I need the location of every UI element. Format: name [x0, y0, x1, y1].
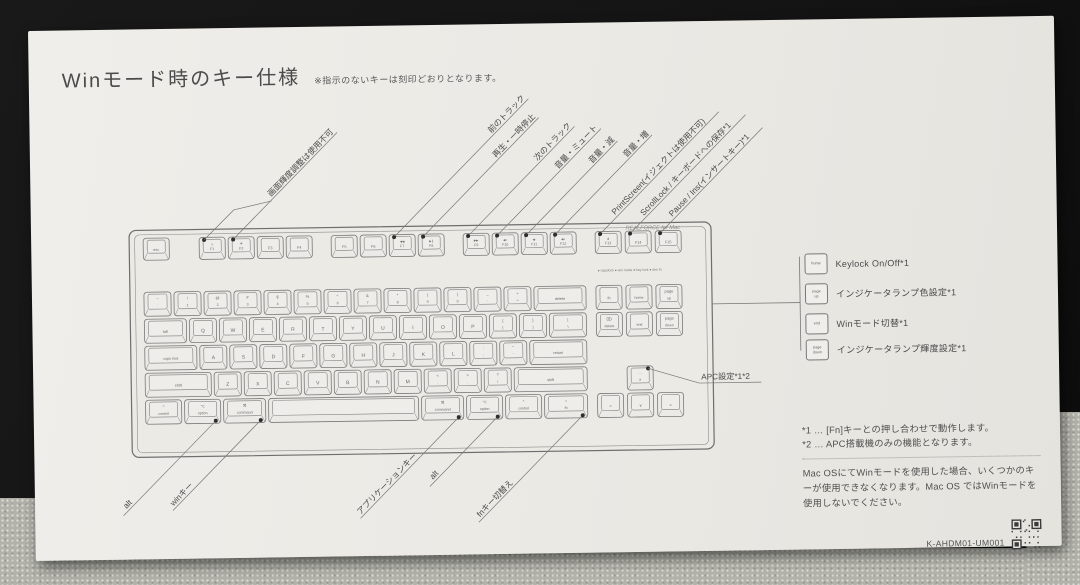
svg-text:▶▶: ▶▶: [474, 238, 479, 242]
callout-label: winキー: [168, 481, 195, 509]
svg-text:9: 9: [427, 300, 429, 304]
key-g: G: [320, 343, 347, 367]
svg-text:⌥: ⌥: [200, 403, 205, 408]
key-f4: F4: [286, 236, 312, 258]
svg-text:delete: delete: [555, 297, 565, 301]
key-page-up: pageup: [656, 284, 682, 308]
svg-text:1: 1: [187, 303, 189, 307]
svg-text:@: @: [215, 295, 219, 300]
svg-text:&: &: [366, 293, 369, 298]
qr-module: [1037, 542, 1038, 543]
svg-text:◀×: ◀×: [503, 238, 507, 242]
svg-text:H: H: [361, 353, 365, 359]
svg-text:C: C: [286, 381, 290, 387]
svg-text:end: end: [636, 323, 642, 327]
key-esc: esc: [143, 238, 169, 260]
key-2: @2: [204, 291, 231, 315]
key-s: S: [230, 345, 257, 369]
svg-text:7: 7: [367, 301, 369, 305]
legend-row-lamp-color: page up インジケータランプ色設定*1: [805, 281, 957, 304]
svg-text:command: command: [237, 411, 253, 415]
key-p: P: [459, 314, 486, 338]
qr-module: [1012, 531, 1013, 532]
svg-text:F1: F1: [210, 247, 214, 251]
svg-text::: :: [483, 345, 484, 350]
svg-text:^: ^: [163, 404, 165, 409]
key-comma: <,: [424, 369, 451, 393]
key-u: U: [369, 316, 396, 340]
qr-module: [1037, 537, 1038, 538]
svg-text:6: 6: [337, 301, 339, 305]
svg-text:up: up: [667, 296, 671, 300]
key-x: X: [244, 371, 271, 395]
model-number: K-AHDM01-UM001: [926, 538, 1004, 551]
svg-text:`: `: [157, 304, 158, 308]
key-f5: F5: [331, 235, 357, 257]
key-f3: F3: [257, 236, 283, 258]
key-5: %5: [294, 290, 321, 314]
svg-text:^: ^: [523, 399, 525, 404]
qr-module: [1020, 537, 1021, 538]
svg-text:5: 5: [307, 302, 309, 306]
key-nav-fn: fn: [596, 285, 622, 309]
qr-module: [1025, 543, 1026, 544]
svg-text:F15: F15: [665, 240, 672, 244]
manual-page: Winモード時のキー仕様 ※指示のないキーは刻印どおりとなります。 REALFO…: [28, 16, 1062, 561]
photo-scene: Winモード時のキー仕様 ※指示のないキーは刻印どおりとなります。 REALFO…: [0, 0, 1080, 585]
svg-text:D: D: [272, 354, 276, 360]
footnote-divider: [802, 455, 1040, 460]
model-row: K-AHDM01-UM001: [803, 519, 1041, 553]
key-rcontrol: ^control: [505, 394, 541, 419]
legend-label-keylock: Keylock On/Off*1: [835, 257, 909, 268]
svg-text:=: =: [516, 299, 518, 303]
svg-text:◀-: ◀-: [532, 237, 535, 241]
svg-text:shift: shift: [547, 378, 555, 382]
qr-code: [1011, 519, 1041, 549]
key-lcontrol: ^control: [145, 400, 181, 425]
svg-text:F9: F9: [474, 243, 478, 247]
key-quote: "': [500, 341, 527, 365]
key-arrow-down: ∨: [627, 393, 653, 417]
key-3: #3: [234, 291, 261, 315]
svg-text:F12: F12: [560, 242, 566, 246]
key-f6: F6: [360, 235, 386, 257]
key-lbracket: {[: [489, 314, 516, 338]
key-v: V: [304, 371, 331, 395]
key-r: R: [279, 317, 306, 341]
key-arrow-left: <: [597, 393, 623, 417]
svg-text:!: !: [187, 296, 188, 301]
svg-text:8: 8: [397, 300, 399, 304]
qr-module: [1033, 537, 1034, 538]
callout-top-1: 前のトラック: [388, 91, 528, 235]
svg-text:page: page: [665, 315, 675, 320]
svg-text:4: 4: [277, 302, 279, 306]
svg-text:F14: F14: [635, 241, 642, 245]
svg-text:\: \: [567, 325, 568, 329]
svg-text:delete: delete: [605, 324, 615, 328]
key-j: J: [380, 342, 407, 366]
key-7: &7: [354, 289, 381, 313]
svg-text:M: M: [406, 379, 410, 385]
key-lshift: shift: [145, 372, 211, 397]
key-return: return: [530, 340, 587, 365]
key-equals: +=: [504, 287, 531, 311]
svg-text:;: ;: [483, 353, 484, 357]
qr-module: [1014, 523, 1018, 527]
legend-bracket-line: [712, 303, 800, 304]
key-delete: delete: [534, 286, 586, 311]
qr-module: [1015, 543, 1019, 547]
legend-row-lamp-brightness: page down インジケータランプ輝度設定*1: [806, 337, 967, 360]
key-b: B: [334, 370, 361, 394]
qr-module: [1026, 547, 1027, 548]
key-m: M: [394, 369, 421, 393]
key-semicolon: :;: [470, 341, 497, 365]
qr-module: [1023, 521, 1024, 522]
svg-text:⌘: ⌘: [243, 403, 247, 408]
svg-text:0: 0: [457, 299, 459, 303]
qr-module: [1024, 531, 1025, 532]
key-capslock: caps lock: [145, 346, 197, 371]
apc-label: APC設定*1*2: [701, 371, 750, 382]
svg-text:◀◀: ◀◀: [400, 239, 405, 243]
svg-text:F11: F11: [531, 242, 537, 246]
svg-text:option: option: [480, 407, 490, 411]
svg-text:2: 2: [217, 303, 219, 307]
svg-text:F2: F2: [239, 247, 243, 251]
svg-text:%: %: [306, 294, 310, 299]
svg-text:^: ^: [336, 293, 338, 298]
end-key-icon: end: [805, 313, 828, 334]
callout-top-9: Pause / Ins(インサートキー)*1: [655, 121, 763, 232]
svg-text:U: U: [381, 326, 385, 332]
key-rbracket: }]: [519, 313, 546, 337]
key-d: D: [260, 344, 287, 368]
svg-text:F8: F8: [429, 244, 433, 248]
page-down-key-icon: page down: [806, 339, 829, 360]
legend-label-lamp-color: インジケータランプ色設定*1: [836, 285, 957, 300]
svg-text:[: [: [502, 326, 503, 330]
svg-text:F13: F13: [605, 241, 611, 245]
key-q: Q: [189, 318, 216, 342]
mac-os-note: Mac OSにてWinモードを使用した場合、いくつかのキーが使用できなくなります…: [803, 463, 1042, 511]
key-0: )0: [444, 287, 471, 311]
legend-label-win-mode: Winモード切替*1: [836, 316, 908, 330]
key-k: K: [410, 342, 437, 366]
svg-text:F10: F10: [502, 243, 508, 247]
key-end: end: [626, 312, 652, 336]
key-h: H: [350, 343, 377, 367]
key-n: N: [364, 370, 391, 394]
svg-text:L: L: [452, 352, 455, 358]
qr-module: [1029, 542, 1030, 543]
qr-module: [1029, 525, 1030, 526]
key-backslash: |\: [549, 313, 586, 338]
svg-text:control: control: [158, 412, 169, 416]
svg-text:☀: ☀: [239, 241, 243, 246]
svg-text:- - -: - - -: [638, 371, 643, 375]
legend-row-keylock: home Keylock On/Off*1: [804, 252, 909, 275]
callout-label: 画面輝度調整は使用不可: [265, 127, 335, 199]
svg-text:⌥: ⌥: [482, 399, 487, 404]
key-minus: _-: [474, 287, 501, 311]
key-c: C: [274, 371, 301, 395]
key-9: (9: [414, 288, 441, 312]
svg-text:F: F: [302, 354, 305, 360]
legend-bracket-line: [799, 257, 800, 351]
legend-label-lamp-brightness: インジケータランプ輝度設定*1: [837, 341, 967, 356]
callout-label: 音量・増: [621, 129, 651, 159]
svg-text:F5: F5: [342, 245, 346, 249]
callout-top-2: 再生・一時停止: [417, 110, 539, 235]
callout-label: fnキー切替え: [474, 478, 514, 519]
svg-text:O: O: [441, 325, 445, 331]
key-1: !1: [174, 291, 201, 315]
key-e: E: [249, 317, 276, 341]
key-tab: tab: [144, 319, 186, 344]
svg-text:esc: esc: [153, 248, 159, 252]
key-t: T: [309, 316, 336, 340]
svg-text:fn: fn: [565, 406, 568, 410]
svg-text:return: return: [553, 351, 563, 355]
qr-module: [1037, 531, 1038, 532]
svg-text:|: |: [567, 317, 568, 322]
key-f: F: [290, 344, 317, 368]
svg-text:◀+: ◀+: [561, 237, 565, 241]
svg-text:caps lock: caps lock: [163, 357, 178, 361]
svg-text:F7: F7: [400, 244, 404, 248]
svg-text:tab: tab: [163, 330, 168, 334]
qr-module: [1039, 547, 1040, 548]
key-y: Y: [339, 316, 366, 340]
svg-text:Q: Q: [201, 328, 205, 334]
key-home: home: [626, 285, 652, 309]
svg-text:I: I: [412, 325, 413, 331]
svg-text:.: .: [467, 380, 468, 384]
key-l: L: [440, 342, 467, 366]
callout-label: alt: [428, 468, 441, 481]
svg-text:N: N: [376, 380, 380, 386]
svg-text:F3: F3: [268, 246, 272, 250]
svg-text:shift: shift: [175, 384, 183, 388]
callout-top-7: PrintScreen(イジェクトは使用不可): [594, 104, 719, 232]
key-period: >.: [454, 368, 481, 392]
key-8: *8: [384, 288, 411, 312]
footnotes: *1 … [Fn]キーとの押し合わせで動作します。 *2 … APC搭載機のみの…: [802, 420, 1042, 553]
svg-text:W: W: [231, 328, 236, 334]
svg-text:∧: ∧: [639, 378, 642, 382]
svg-text:F4: F4: [297, 246, 301, 250]
callout-label: アプリケーションキー: [355, 451, 418, 516]
svg-text:▶∥: ▶∥: [429, 239, 433, 243]
svg-text:page: page: [664, 288, 674, 293]
qr-module: [1016, 537, 1017, 538]
svg-text:home: home: [634, 296, 643, 300]
home-key-icon: home: [804, 253, 827, 274]
svg-text:,: ,: [437, 381, 438, 385]
svg-text:]: ]: [532, 325, 533, 329]
svg-text:/: /: [497, 380, 498, 384]
qr-module: [1034, 522, 1038, 526]
legend-row-win-mode: end Winモード切替*1: [805, 312, 908, 335]
qr-module: [1029, 537, 1030, 538]
key-o: O: [429, 315, 456, 339]
callout-top-0: 画面輝度調整は使用不可: [227, 125, 337, 238]
key-rshift: shift: [514, 367, 587, 392]
footnote-2: *2 … APC搭載機のみの機能となります。: [802, 434, 1040, 452]
svg-text:option: option: [198, 411, 208, 415]
key-4: $4: [264, 290, 291, 314]
svg-text:☼: ☼: [210, 241, 214, 246]
svg-text:⌦: ⌦: [606, 316, 612, 321]
key-page-down: pagedown: [656, 311, 682, 335]
qr-module: [1026, 530, 1027, 531]
key-grave: ~`: [144, 292, 171, 316]
svg-text:∨: ∨: [639, 403, 642, 408]
svg-text:⌘: ⌘: [441, 400, 445, 405]
key-z: Z: [214, 372, 241, 396]
page-up-key-icon: page up: [805, 283, 828, 304]
svg-text:Z: Z: [226, 382, 229, 388]
svg-text:G: G: [331, 353, 335, 359]
svg-text:F6: F6: [371, 245, 375, 249]
qr-module: [1029, 531, 1030, 532]
callout-top-6: 音量・増: [549, 128, 652, 234]
callout-label: alt: [121, 498, 134, 511]
svg-text:down: down: [665, 323, 674, 327]
key-w: W: [219, 318, 246, 342]
svg-text:R: R: [291, 327, 295, 333]
key-space: [268, 396, 418, 422]
key-a: A: [200, 345, 227, 369]
key-arrow-right: >: [657, 392, 683, 416]
svg-text:control: control: [518, 406, 529, 410]
svg-text:3: 3: [247, 303, 249, 307]
key-fwd-delete: ⌦delete: [596, 312, 622, 336]
key-6: ^6: [324, 289, 351, 313]
qr-module: [1035, 547, 1036, 548]
qr-module: [1024, 520, 1025, 521]
svg-text:fn: fn: [607, 296, 610, 300]
callout-top-8: ScrollLock / キーボードへの保存*1: [624, 107, 746, 232]
svg-text:▲: ▲: [606, 236, 609, 240]
key-i: I: [399, 315, 426, 339]
svg-text:command: command: [435, 408, 451, 412]
qr-module: [1020, 531, 1021, 532]
key-slash: ?/: [484, 368, 511, 392]
svg-text:T: T: [321, 326, 324, 332]
